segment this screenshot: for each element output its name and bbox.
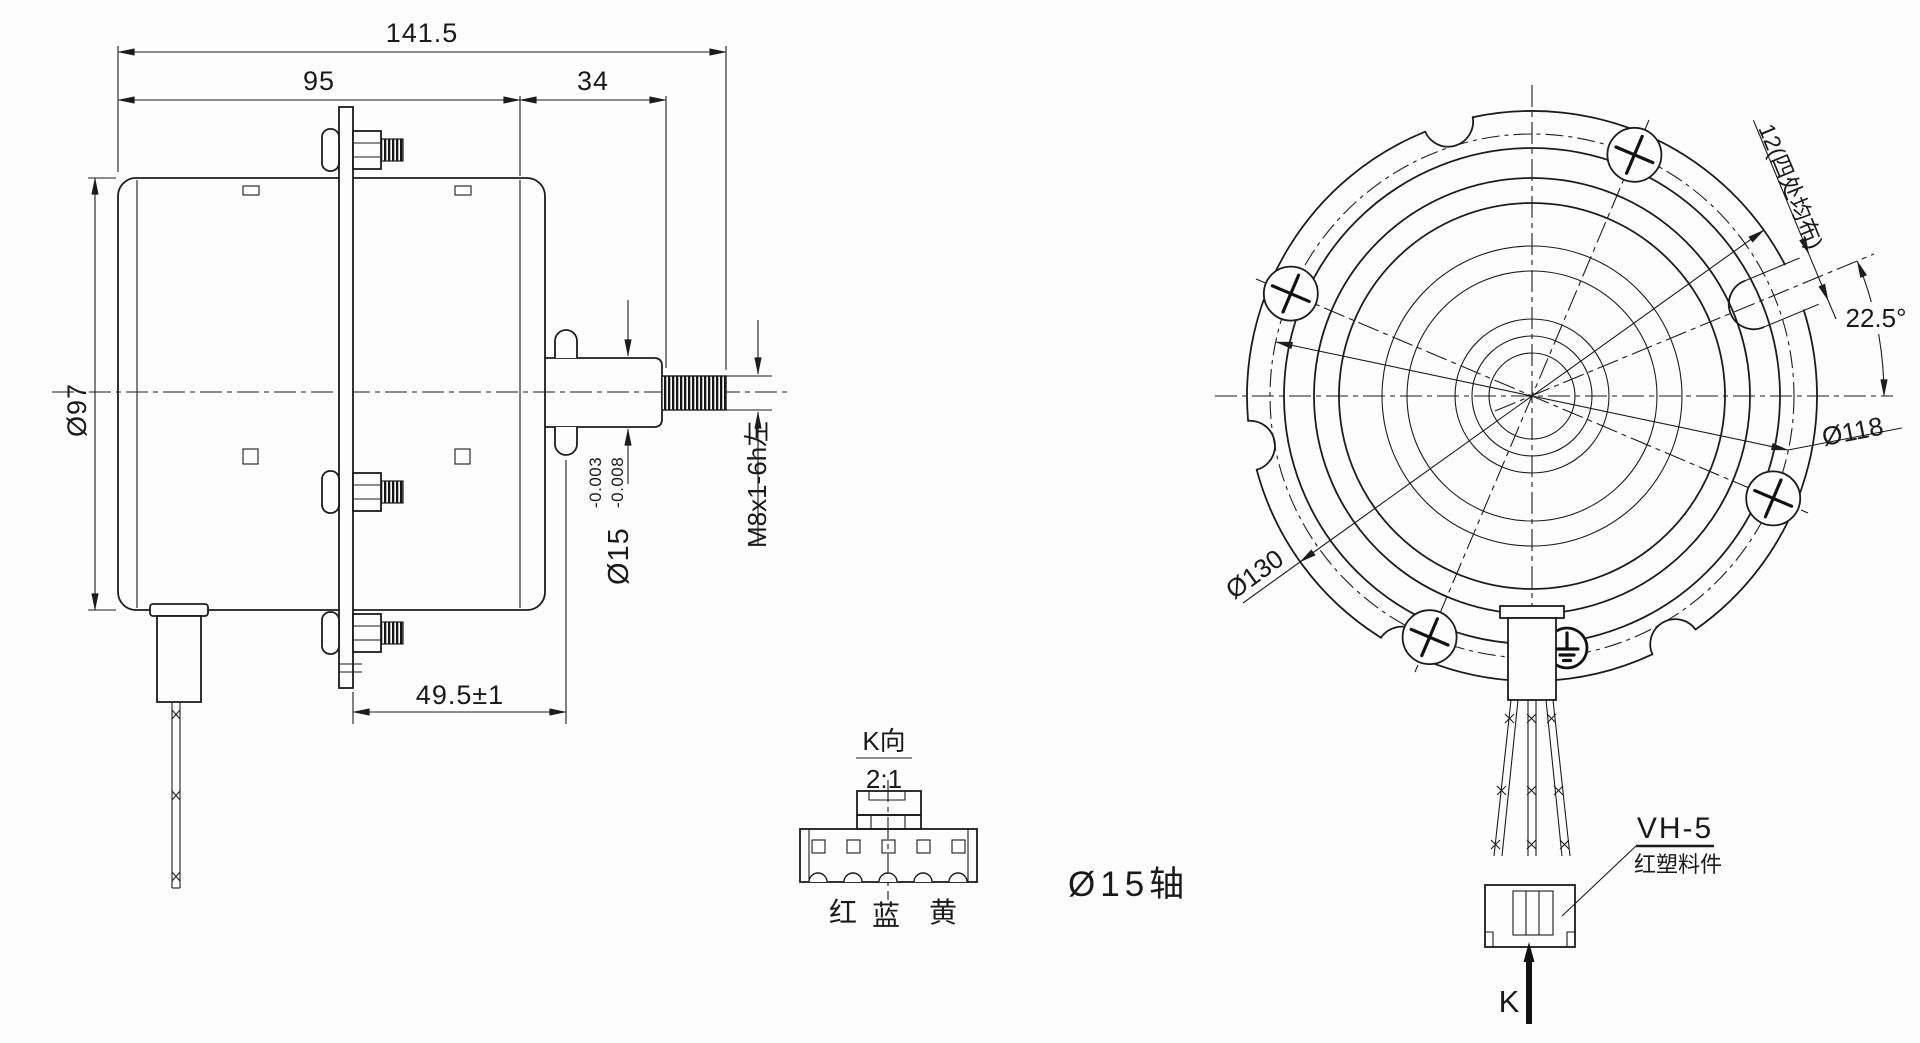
wire-label-yellow: 黄 — [929, 897, 957, 928]
connector-latch-cap — [857, 791, 921, 815]
bolt-hex-head — [353, 473, 381, 511]
mounting-plate — [339, 107, 353, 688]
plate-bolt-top — [322, 129, 403, 171]
bolt-tab — [322, 129, 339, 171]
dim-overall-length: 141.5 — [118, 18, 726, 370]
drawing-canvas: 141.5 95 34 Ø97 49.5±1 Ø15 — [0, 0, 1920, 1043]
shaft-thread-m8 — [662, 376, 726, 410]
shaft-tol-upper: -0.003 — [586, 457, 605, 508]
shaft-tol-lower: -0.008 — [608, 457, 627, 508]
plate-bolt-middle — [322, 471, 403, 513]
view-direction-arrow-k: K — [1499, 942, 1535, 1024]
dim-front-text: 34 — [577, 66, 609, 96]
bolt-hex-head — [353, 614, 381, 652]
dim-diameter-text: Ø97 — [62, 383, 92, 437]
connector-pin-hole — [847, 840, 860, 853]
dim-shaft-diameter: Ø15 -0.003 -0.008 — [586, 300, 635, 585]
flange-slot-22-5 — [1729, 258, 1819, 329]
connector-material-text: 红塑料件 — [1634, 852, 1722, 877]
wire-twist-mark — [172, 710, 180, 881]
connector-neck — [857, 815, 921, 829]
dim-overall-text: 141.5 — [386, 18, 459, 48]
cable-gland-cap — [150, 604, 208, 616]
bolt-thread-stub — [381, 139, 403, 161]
plate-bolt-bottom — [322, 612, 403, 654]
flange-notch — [1248, 421, 1275, 470]
front-view: 12(四处均布) 22.5° Ø118 Ø130 VH-5 红塑料件 — [1215, 85, 1909, 1024]
dim-thread-spec: M8x1-6h左 — [726, 320, 772, 548]
detail-view-k: K向 2:1 红 蓝 黄 Ø15轴 — [800, 726, 1189, 931]
bolt-tab — [322, 612, 339, 654]
bolt-tab — [322, 471, 339, 513]
connector-callout: VH-5 红塑料件 — [1562, 812, 1722, 916]
angle-text: 22.5° — [1845, 303, 1906, 333]
housing-scallop — [809, 873, 827, 882]
connector-pin-hole — [952, 840, 965, 853]
detail-title: K向 — [862, 726, 905, 756]
shaft-dia-text: Ø15 — [603, 527, 635, 585]
side-view: 141.5 95 34 Ø97 49.5±1 Ø15 — [52, 18, 792, 888]
dim-angle: 22.5° — [1843, 261, 1909, 396]
connector-model-text: VH-5 — [1637, 812, 1713, 845]
cable-stem — [1508, 618, 1556, 700]
housing-scallop — [949, 873, 967, 882]
housing-scallop — [844, 873, 862, 882]
connector-pin-hole — [812, 840, 825, 853]
detail-scale: 2:1 — [866, 764, 902, 794]
bolt-thread-stub — [381, 622, 403, 644]
connector-side-view — [1485, 885, 1575, 947]
mounting-screw — [1403, 610, 1457, 664]
engineering-drawing-sheet: 141.5 95 34 Ø97 49.5±1 Ø15 — [0, 0, 1920, 1043]
shaft-note: Ø15轴 — [1068, 865, 1189, 904]
vent-slot — [455, 186, 471, 195]
vent-hole — [243, 449, 258, 464]
wire-label-blue: 蓝 — [872, 900, 900, 931]
flange-notch — [1650, 619, 1695, 654]
shaft-pin-bottom — [555, 427, 577, 455]
outer-diameter-text: Ø130 — [1220, 543, 1289, 605]
dim-bolt-circle: Ø118 — [1276, 342, 1902, 452]
wire-twist-mark — [1491, 714, 1569, 849]
mounting-screw — [1264, 267, 1318, 321]
bolt-hex-head — [353, 131, 381, 169]
bolt-circle-text: Ø118 — [1819, 411, 1885, 452]
motor-body-outline — [118, 178, 545, 610]
dim-body-text: 95 — [303, 66, 335, 96]
dim-slot-width: 12(四处均布) — [1753, 120, 1836, 319]
dim-body-diameter: Ø97 — [62, 178, 116, 610]
vent-slot — [243, 186, 259, 195]
connector-pin-hole — [917, 840, 930, 853]
thread-spec-text: M8x1-6h左 — [742, 421, 772, 548]
dim-body-length: 95 34 — [118, 66, 666, 368]
harness-wires — [1491, 700, 1570, 856]
housing-scallop — [914, 873, 932, 882]
bolt-thread-stub — [381, 481, 403, 503]
wire-label-red: 红 — [829, 897, 857, 928]
mounting-screw — [1746, 471, 1800, 525]
stem-collar — [1500, 606, 1564, 618]
shaft-pin-top — [555, 330, 577, 358]
cable-gland-body — [157, 616, 201, 702]
dim-plate-text: 49.5±1 — [416, 680, 504, 710]
callout-leader — [1562, 846, 1636, 916]
housing-scallop — [879, 873, 897, 882]
lead-wire — [172, 702, 180, 888]
vent-hole — [455, 449, 470, 464]
view-label-text: K — [1499, 984, 1520, 1019]
connector-shell — [1485, 885, 1575, 947]
mounting-screw — [1607, 128, 1661, 182]
